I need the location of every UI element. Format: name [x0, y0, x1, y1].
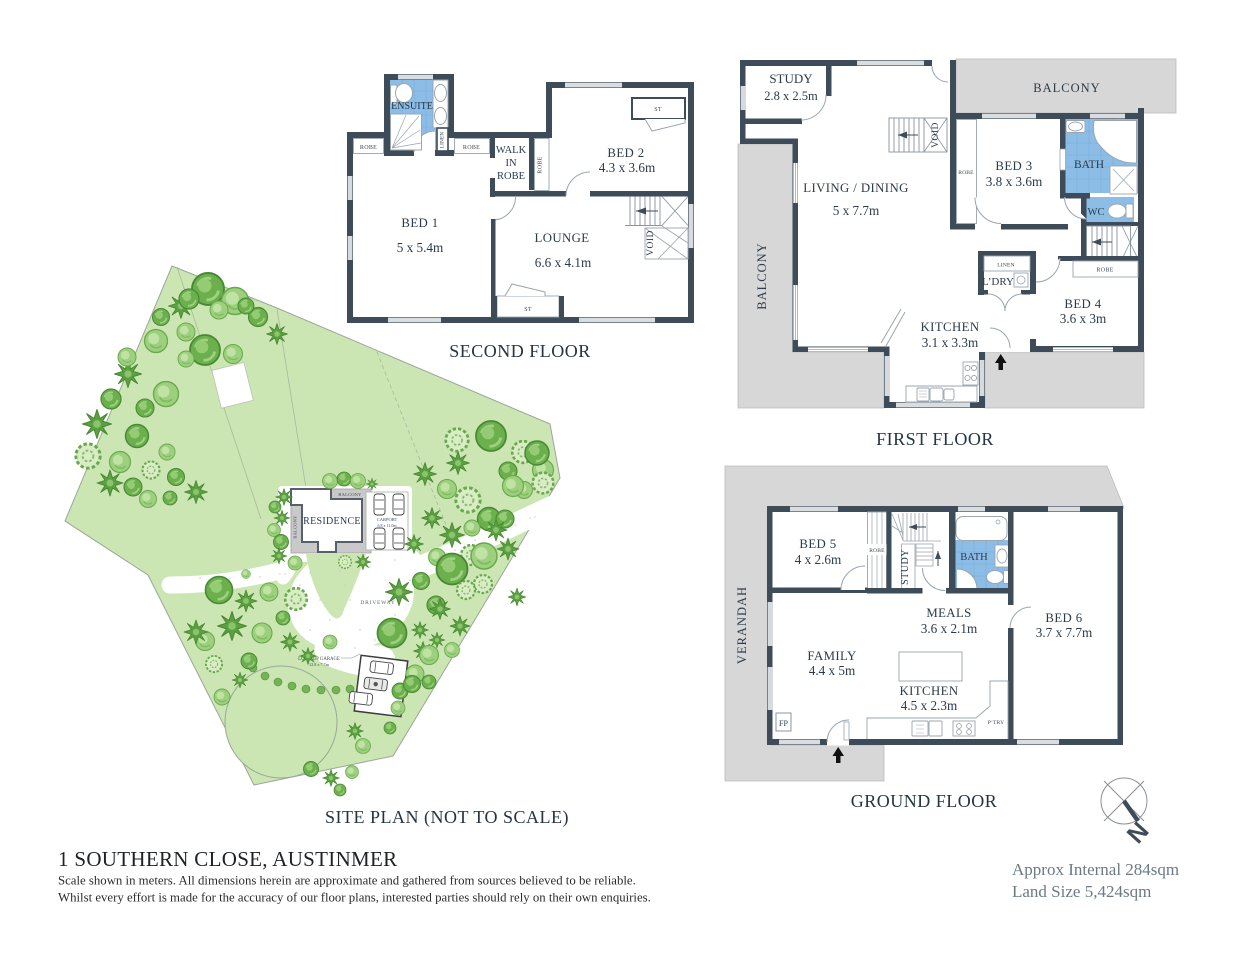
- svg-text:LINEN: LINEN: [997, 263, 1015, 269]
- svg-text:BED 6: BED 6: [1045, 611, 1082, 625]
- svg-text:BALCONY: BALCONY: [293, 515, 298, 539]
- svg-text:STUDY: STUDY: [769, 71, 813, 86]
- svg-text:1 SOUTHERN CLOSE, AUSTINMER: 1 SOUTHERN CLOSE, AUSTINMER: [58, 847, 397, 871]
- svg-text:L’DRY: L’DRY: [982, 276, 1014, 288]
- svg-text:WALK: WALK: [496, 145, 527, 156]
- svg-text:2.8 x 2.5m: 2.8 x 2.5m: [764, 89, 818, 103]
- svg-text:BALCONY: BALCONY: [755, 242, 769, 309]
- svg-text:ROBE: ROBE: [869, 548, 885, 554]
- svg-text:IN: IN: [505, 158, 516, 169]
- svg-text:BED 3: BED 3: [995, 159, 1032, 173]
- svg-text:SECOND FLOOR: SECOND FLOOR: [449, 341, 591, 361]
- svg-text:LOUNGE: LOUNGE: [535, 231, 590, 245]
- svg-text:ROBE: ROBE: [360, 145, 377, 151]
- svg-text:BATH: BATH: [960, 552, 988, 563]
- svg-text:3.6 x 2.1m: 3.6 x 2.1m: [921, 621, 978, 636]
- svg-text:BATH: BATH: [1074, 159, 1104, 171]
- svg-text:ST: ST: [654, 107, 662, 113]
- svg-text:ROBE: ROBE: [463, 145, 480, 151]
- svg-text:3.7 x 7.7m: 3.7 x 7.7m: [1036, 625, 1093, 640]
- svg-text:SITE PLAN (NOT TO SCALE): SITE PLAN (NOT TO SCALE): [325, 807, 569, 828]
- svg-text:VOID: VOID: [931, 122, 941, 148]
- svg-text:BALCONY: BALCONY: [338, 492, 362, 497]
- svg-text:FIRST FLOOR: FIRST FLOOR: [876, 429, 994, 449]
- svg-text:3.6 x 3m: 3.6 x 3m: [1060, 311, 1107, 326]
- svg-text:ROBE: ROBE: [497, 171, 525, 182]
- svg-text:Approx Internal 284sqm: Approx Internal 284sqm: [1012, 860, 1179, 879]
- svg-text:BED 5: BED 5: [799, 537, 836, 551]
- svg-text:MEALS: MEALS: [926, 606, 971, 620]
- svg-text:BED 2: BED 2: [607, 146, 644, 160]
- svg-text:VOID: VOID: [646, 230, 656, 256]
- svg-text:LINEN: LINEN: [441, 132, 446, 149]
- svg-text:4 x 2.6m: 4 x 2.6m: [795, 552, 842, 567]
- svg-text:6.6 x 4.1m: 6.6 x 4.1m: [535, 255, 592, 270]
- svg-text:VERANDAH: VERANDAH: [735, 586, 749, 664]
- svg-text:ROBE: ROBE: [958, 170, 974, 176]
- svg-text:RESIDENCE: RESIDENCE: [303, 516, 361, 527]
- svg-text:12.8 x 7.7m: 12.8 x 7.7m: [309, 662, 330, 667]
- svg-text:GROUND FLOOR: GROUND FLOOR: [851, 791, 998, 811]
- svg-text:CARPORT: CARPORT: [377, 517, 398, 522]
- svg-text:3.8 x 3.6m: 3.8 x 3.6m: [986, 174, 1043, 189]
- svg-text:ST: ST: [524, 307, 532, 313]
- svg-text:BALCONY: BALCONY: [1033, 81, 1100, 95]
- svg-text:STUDY: STUDY: [900, 549, 911, 585]
- svg-text:FP: FP: [779, 719, 788, 728]
- svg-text:4.3 x 3.6m: 4.3 x 3.6m: [599, 160, 656, 175]
- svg-text:Whilst every effort is made fo: Whilst every effort is made for the accu…: [58, 891, 651, 905]
- svg-text:ROBE: ROBE: [1096, 268, 1113, 274]
- svg-text:5 x 5.4m: 5 x 5.4m: [397, 240, 444, 255]
- svg-text:BED 4: BED 4: [1064, 297, 1101, 311]
- svg-text:WC: WC: [1088, 207, 1105, 218]
- svg-text:KITCHEN: KITCHEN: [921, 320, 980, 334]
- svg-text:BED 1: BED 1: [401, 216, 438, 230]
- svg-text:4.5 x 2.3m: 4.5 x 2.3m: [901, 698, 958, 713]
- svg-text:FAMILY: FAMILY: [807, 649, 856, 663]
- svg-text:Land Size 5,424sqm: Land Size 5,424sqm: [1012, 882, 1151, 901]
- svg-text:6.8 x 11.0m: 6.8 x 11.0m: [378, 523, 398, 528]
- svg-text:Scale shown in meters. All dim: Scale shown in meters. All dimensions he…: [58, 874, 636, 888]
- svg-text:3.1 x 3.3m: 3.1 x 3.3m: [922, 335, 979, 350]
- svg-text:4.4 x 5m: 4.4 x 5m: [809, 663, 856, 678]
- svg-text:KITCHEN: KITCHEN: [900, 684, 959, 698]
- svg-text:P’TRY: P’TRY: [988, 720, 1005, 726]
- svg-text:ENSUITE: ENSUITE: [391, 101, 433, 112]
- svg-text:LIVING / DINING: LIVING / DINING: [803, 181, 909, 195]
- svg-text:5 x 7.7m: 5 x 7.7m: [833, 203, 880, 218]
- svg-text:ROBE: ROBE: [538, 156, 544, 173]
